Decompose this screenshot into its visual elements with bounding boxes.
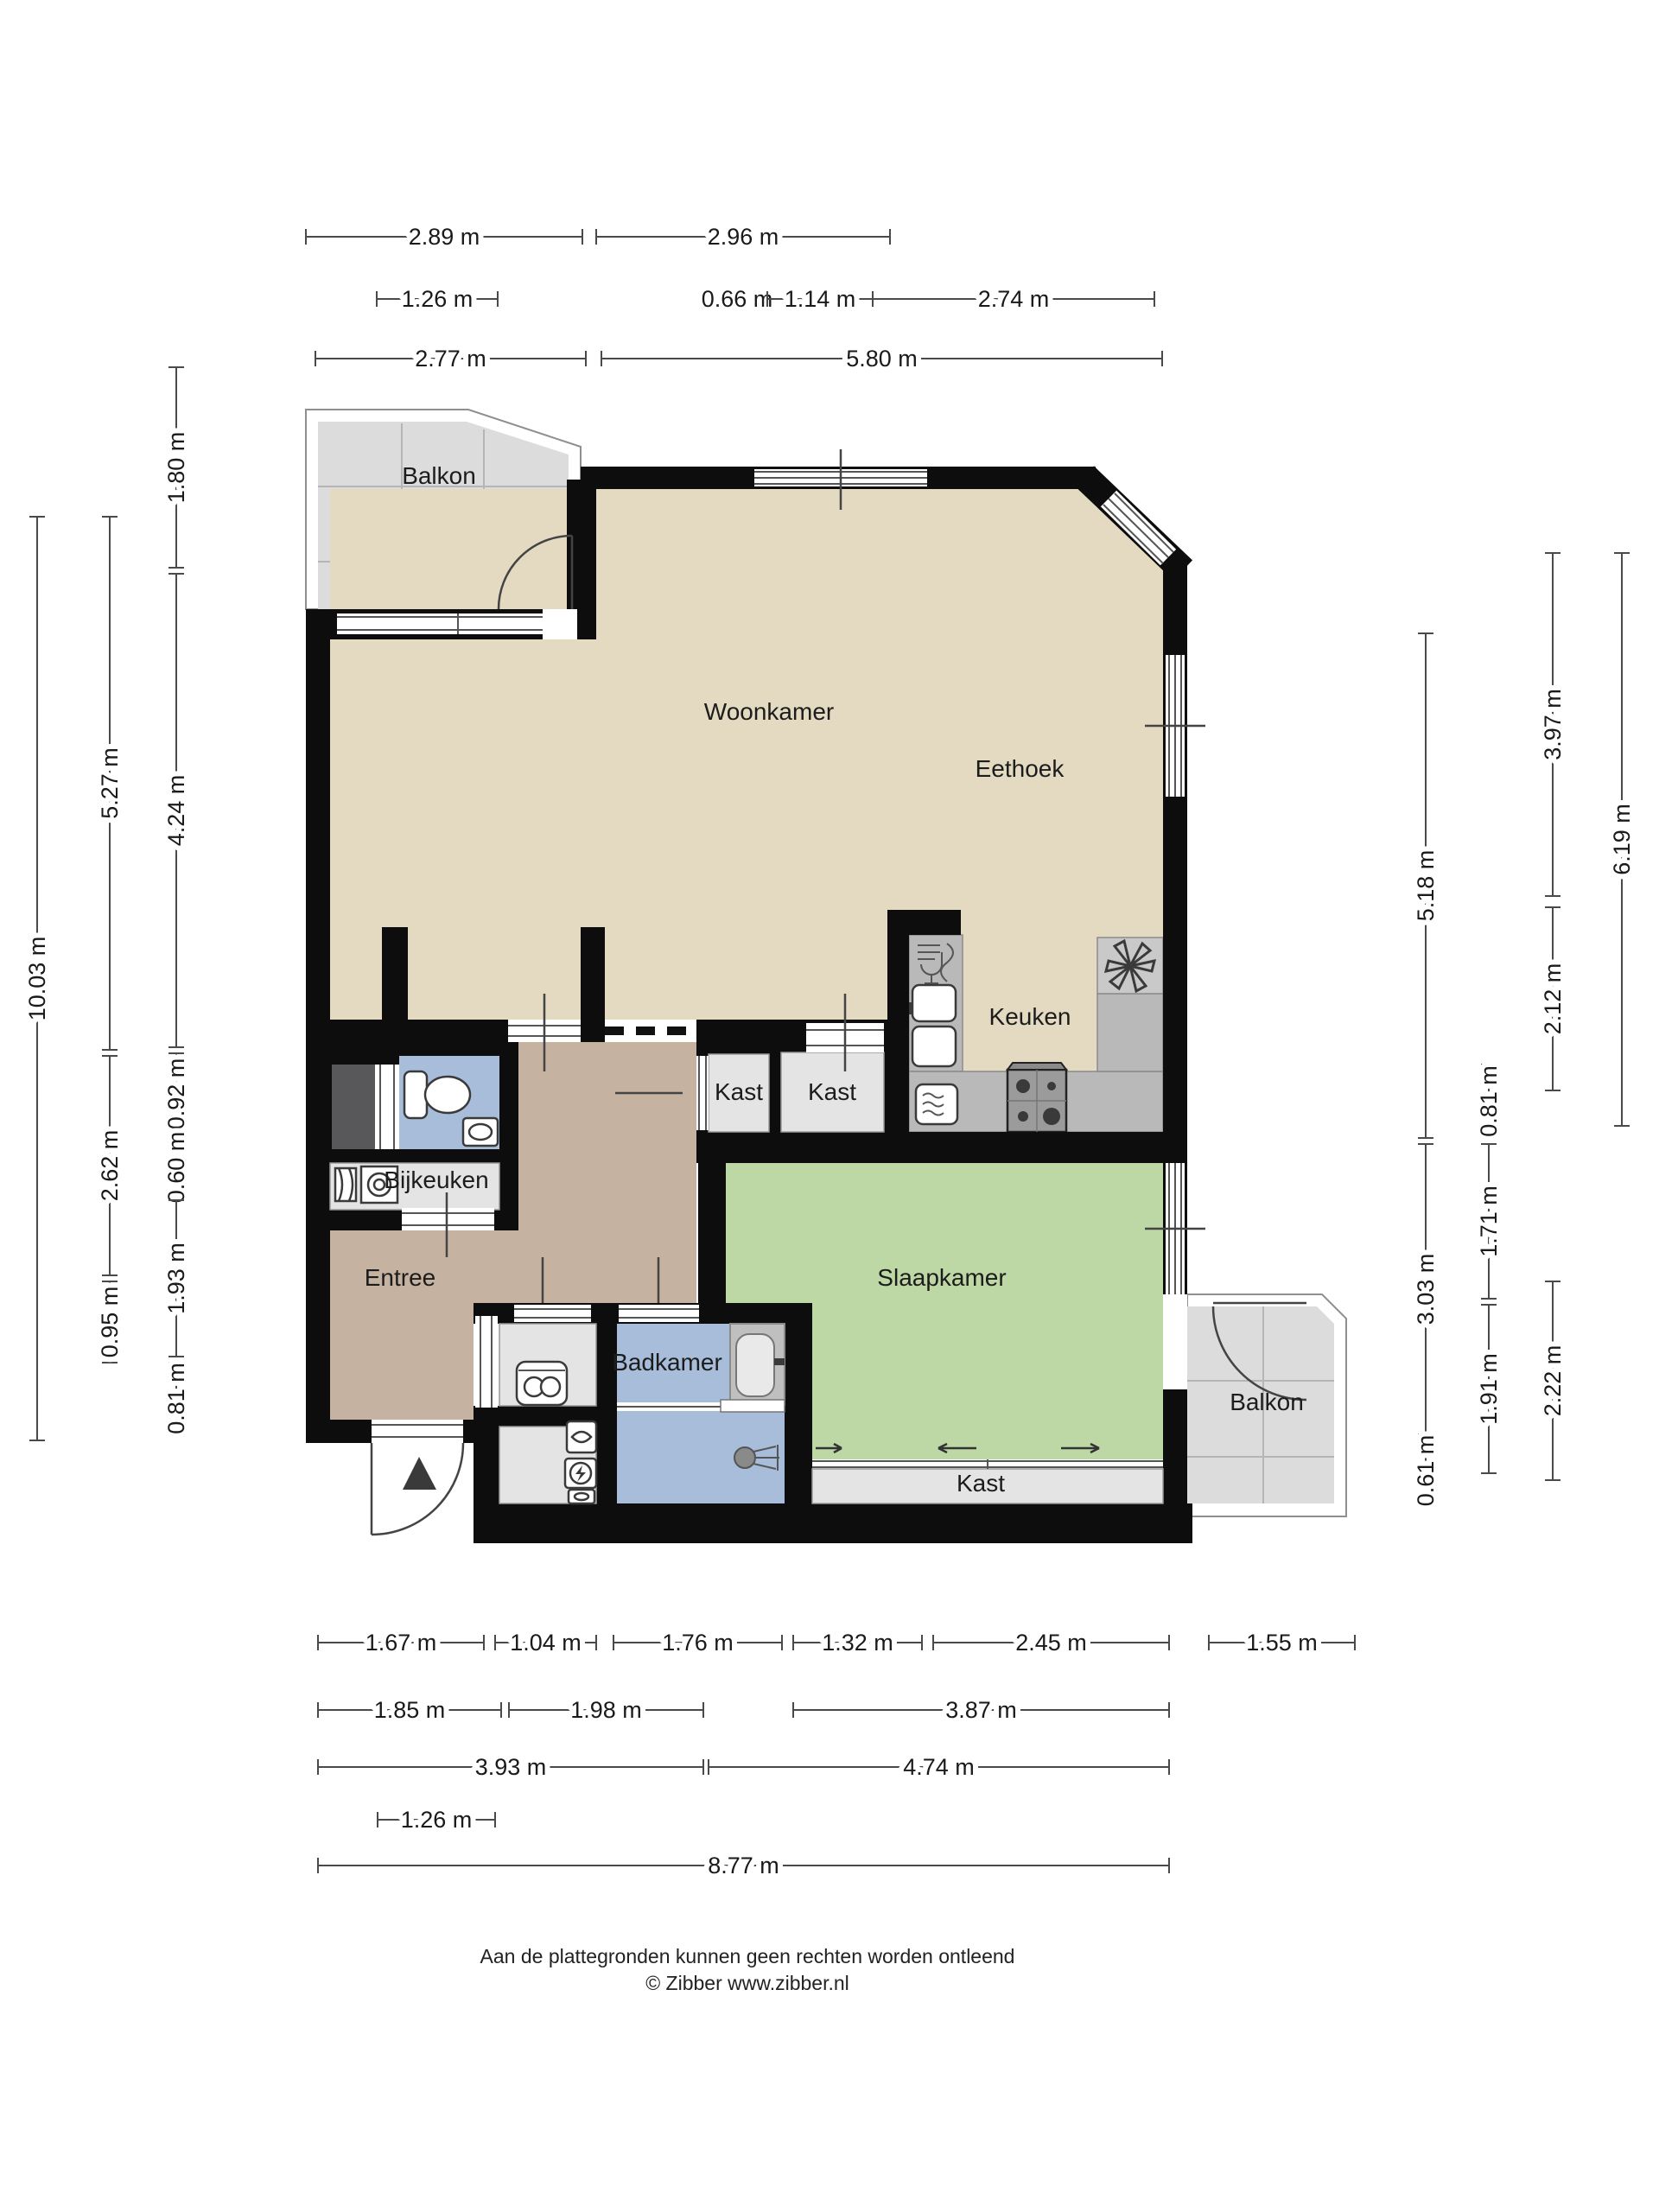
dimension-label: 4.24 m: [163, 775, 189, 847]
dimension-label: 1.80 m: [163, 432, 189, 504]
room-label-entree: Entree: [365, 1264, 436, 1291]
room-label-eethoek: Eethoek: [976, 755, 1065, 782]
dimension: 2.89 m: [306, 224, 582, 250]
dimension-label: 0.81 m: [163, 1363, 189, 1434]
washbasin-icon: [463, 1118, 498, 1146]
stove-icon: [1007, 1063, 1066, 1132]
room-label-balkon-top: Balkon: [402, 462, 476, 489]
dimension: 2.45 m: [933, 1630, 1169, 1656]
bathtub-icon: [730, 1324, 785, 1405]
dimension: 8.77 m: [318, 1853, 1169, 1878]
dimension: 1.55 m: [1209, 1630, 1355, 1656]
dimension-label: 1.26 m: [401, 1807, 473, 1833]
dimension-label: 1.04 m: [510, 1630, 582, 1656]
dimension: 1.26 m: [378, 1807, 495, 1833]
disclaimer-text: Aan de plattegronden kunnen geen rechten…: [480, 1945, 1015, 1967]
dimension-label: 1.26 m: [402, 286, 474, 312]
dimension-label: 2.62 m: [97, 1130, 123, 1202]
dimension: 0.61 m: [1413, 1435, 1439, 1507]
microwave-icon: [916, 1084, 957, 1124]
dimension-label: 3.87 m: [945, 1697, 1017, 1723]
dimension: 10.03 m: [24, 517, 50, 1440]
dimension-label: 0.92 m: [163, 1058, 189, 1130]
dimension-label: 1.98 m: [570, 1697, 642, 1723]
dimension: 0.81 m: [163, 1363, 189, 1434]
room-label-slaapkamer: Slaapkamer: [877, 1264, 1006, 1291]
boiler-icon: [517, 1362, 567, 1405]
room-label-woonkamer: Woonkamer: [704, 698, 834, 725]
dimension: 2.74 m: [873, 286, 1154, 312]
dimension-label: 2.12 m: [1540, 963, 1566, 1035]
dimension: 5.18 m: [1413, 633, 1439, 1138]
dimension-label: 1.85 m: [374, 1697, 446, 1723]
dimension: 1.14 m: [767, 286, 873, 312]
dimension-label: 1.93 m: [163, 1243, 189, 1314]
room-label-kast-2: Kast: [808, 1078, 856, 1105]
dimension-label: 5.80 m: [846, 346, 918, 372]
dimension-label: 0.61 m: [1413, 1435, 1439, 1507]
dimension: 0.66 m: [702, 286, 773, 312]
entrance-arrow-icon: [403, 1457, 436, 1490]
dimension: 1.85 m: [318, 1697, 501, 1723]
dimension-label: 1.91 m: [1476, 1353, 1502, 1425]
dimension: 1.71 m: [1476, 1144, 1502, 1299]
room-label-balkon-bottom: Balkon: [1230, 1389, 1304, 1415]
dimension: 0.81 m: [1476, 1065, 1502, 1138]
dimension: 1.32 m: [793, 1630, 922, 1656]
dimension-label: 1.55 m: [1246, 1630, 1318, 1656]
dimension: 2.62 m: [97, 1056, 123, 1275]
dimension-label: 1.76 m: [662, 1630, 734, 1656]
dimension-label: 1.67 m: [365, 1630, 437, 1656]
dimension: 1.80 m: [163, 367, 189, 568]
dimension-label: 2.96 m: [708, 224, 779, 250]
dimension-label: 2.77 m: [415, 346, 486, 372]
dimension: 1.98 m: [509, 1697, 703, 1723]
dimension-label: 3.93 m: [475, 1754, 547, 1780]
dimension-label: 2.74 m: [978, 286, 1050, 312]
dimension: 2.96 m: [596, 224, 890, 250]
dimension-label: 2.45 m: [1015, 1630, 1087, 1656]
dimension-label: 5.18 m: [1413, 850, 1439, 922]
dimension: 5.27 m: [97, 517, 123, 1050]
dimension-label: 6.19 m: [1609, 804, 1635, 875]
dimension-label: 1.32 m: [822, 1630, 893, 1656]
dimension-label: 3.97 m: [1540, 689, 1566, 760]
floor-plan-canvas: BalkonWoonkamerEethoekKeukenKastKastBijk…: [0, 0, 1659, 2212]
dimension: 1.67 m: [318, 1630, 484, 1656]
dimension: 2.12 m: [1540, 907, 1566, 1090]
room-label-bijkeuken: Bijkeuken: [384, 1166, 488, 1193]
dimension-label: 2.89 m: [409, 224, 480, 250]
dimension-label: 1.71 m: [1476, 1185, 1502, 1257]
dimension-label: 0.95 m: [97, 1287, 123, 1358]
room-label-keuken: Keuken: [989, 1003, 1071, 1030]
dimension: 0.92 m: [163, 1053, 189, 1135]
dimension-label: 10.03 m: [24, 937, 50, 1021]
floor-plan-page: BalkonWoonkamerEethoekKeukenKastKastBijk…: [0, 0, 1659, 2212]
dimension: 3.97 m: [1540, 553, 1566, 896]
dryer-icon: [335, 1168, 356, 1201]
dimension: 5.80 m: [601, 346, 1162, 372]
dimension: 2.22 m: [1540, 1281, 1566, 1480]
room-label-kast-bottom: Kast: [957, 1470, 1005, 1497]
room-label-badkamer: Badkamer: [612, 1349, 722, 1376]
dimension: 3.93 m: [318, 1754, 703, 1780]
dimension: 3.03 m: [1413, 1144, 1439, 1434]
dimension: 0.95 m: [97, 1281, 123, 1363]
dimension: 4.24 m: [163, 574, 189, 1047]
dimension: 3.87 m: [793, 1697, 1169, 1723]
dimension: 1.76 m: [613, 1630, 782, 1656]
dimension: 2.77 m: [315, 346, 586, 372]
dimension-label: 2.22 m: [1540, 1345, 1566, 1417]
copyright-text: © Zibber www.zibber.nl: [645, 1972, 849, 1994]
dimension: 1.26 m: [377, 286, 498, 312]
dimension-label: 3.03 m: [1413, 1254, 1439, 1325]
dimension: 1.04 m: [495, 1630, 596, 1656]
dimension-label: 0.66 m: [702, 286, 773, 312]
dimension-label: 5.27 m: [97, 747, 123, 819]
water-meter-icon: [567, 1421, 596, 1452]
dimension-label: 4.74 m: [903, 1754, 975, 1780]
dimension-label: 0.81 m: [1476, 1065, 1502, 1137]
dimension-label: 1.14 m: [785, 286, 856, 312]
room-label-kast-1: Kast: [715, 1078, 763, 1105]
electric-panel-icon: [565, 1459, 596, 1488]
dimension-label: 0.60 m: [163, 1132, 189, 1204]
gas-meter-icon: [569, 1490, 594, 1503]
dimension: 1.91 m: [1476, 1305, 1502, 1473]
dimension: 4.74 m: [709, 1754, 1169, 1780]
dimension: 0.60 m: [163, 1132, 189, 1204]
dimension: 1.93 m: [163, 1200, 189, 1357]
dimension-label: 8.77 m: [708, 1853, 779, 1878]
dimension: 6.19 m: [1609, 553, 1635, 1126]
